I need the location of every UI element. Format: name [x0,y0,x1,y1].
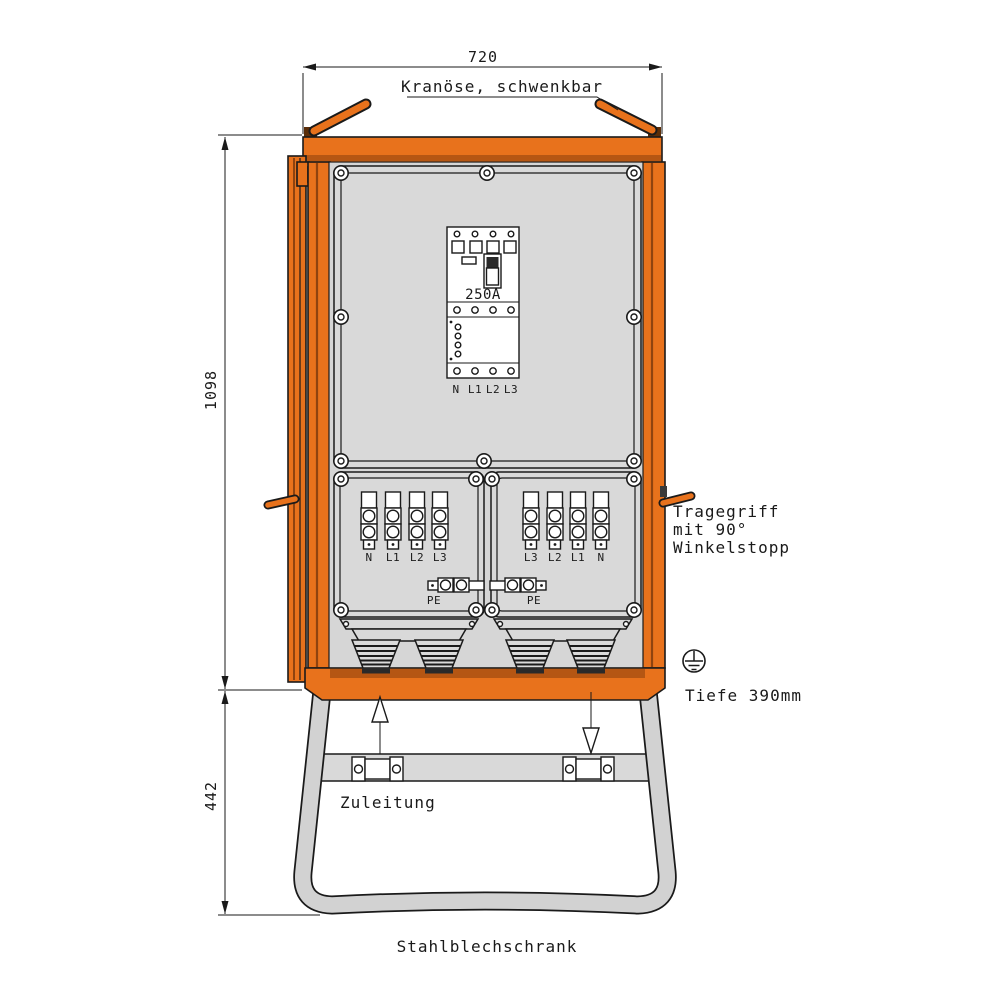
cabinet-bottom-band [305,668,665,700]
mounting-panel-lower-left: N L1 L2 L3 PE [334,472,484,617]
cable-clamp-left [352,757,403,781]
terminal-label: N [365,551,372,564]
panel-screw [480,166,494,180]
door-handle-left [268,499,295,505]
stand-tube-outline [303,672,668,905]
dimension-stand-height-value: 442 [202,781,220,811]
panel-screw [627,472,641,486]
terminal-label: L2 [548,551,562,564]
dimension-width-value: 720 [468,48,498,66]
breaker-terminal-label: L3 [504,383,518,396]
crane-eyelet-left [304,104,366,137]
carry-handle-label-line3: Winkelstopp [673,538,790,557]
panel-screw [334,603,348,617]
stand-frame [303,672,668,905]
terminal-block [432,492,448,549]
terminal-block [361,492,377,549]
breaker-terminal-label: L2 [486,383,500,396]
panel-screw [627,166,641,180]
panel-screw [627,310,641,324]
depth-label: Tiefe 390mm [685,686,802,705]
door-handle-right [660,486,691,503]
supply-label: Zuleitung [340,793,436,812]
cable-flange-right [494,619,632,641]
panel-screw [627,603,641,617]
terminal-label: N [597,551,604,564]
earth-symbol [683,650,705,672]
terminal-block [547,492,563,549]
terminal-block [409,492,425,549]
panel-screw [334,310,348,324]
dimension-body-height: 1098 [202,135,302,689]
supply-arrow-down [583,692,599,753]
cabinet-technical-drawing: 250A N L1 L2 L3 [0,0,1000,1000]
breaker-terminal-label: N [452,383,459,396]
cable-flange-left [340,619,478,641]
terminal-label: L3 [433,551,447,564]
crane-eyelet-right [600,104,661,137]
panel-screw [334,472,348,486]
supply-arrow-up [372,697,388,754]
panel-screw [485,603,499,617]
cable-clamp-right [563,757,614,781]
circuit-breaker: 250A N L1 L2 L3 [447,227,519,396]
terminal-block [385,492,401,549]
crane-label: Kranöse, schwenkbar [401,77,603,96]
terminal-block [593,492,609,549]
pe-label: PE [527,594,541,607]
panel-screw [334,454,348,468]
panel-screw [469,472,483,486]
panel-screw [485,472,499,486]
panel-screw [477,454,491,468]
panel-screw [627,454,641,468]
terminal-label: L2 [410,551,424,564]
terminal-label: L3 [524,551,538,564]
breaker-toggle [484,254,501,288]
breaker-terminal-label: L1 [468,383,482,396]
stand-tube [303,672,668,905]
cabinet-body: 250A N L1 L2 L3 [268,137,691,700]
carry-handle-annotation: Tragegriff mit 90° Winkelstopp [673,502,790,557]
cabinet-frame-left [308,162,330,668]
terminal-label: L1 [386,551,400,564]
cabinet-top-band [303,137,662,163]
dimension-body-height-value: 1098 [202,370,220,410]
pe-label: PE [427,594,441,607]
terminal-label: L1 [571,551,585,564]
breaker-rating-label: 250A [465,287,501,303]
drawing-title: Stahlblechschrank [397,937,578,956]
crane-annotation: Kranöse, schwenkbar [401,77,618,110]
carry-handle-label-line1: Tragegriff [673,502,779,521]
carry-handle-label-line2: mit 90° [673,520,747,539]
mounting-panel-lower-right: L3 L2 L1 N PE [485,472,641,617]
terminal-block [570,492,586,549]
technical-drawing-page: 250A N L1 L2 L3 [0,0,1000,1000]
terminal-block [523,492,539,549]
cabinet-frame-right [642,162,665,668]
panel-screw [334,166,348,180]
panel-screw [469,603,483,617]
